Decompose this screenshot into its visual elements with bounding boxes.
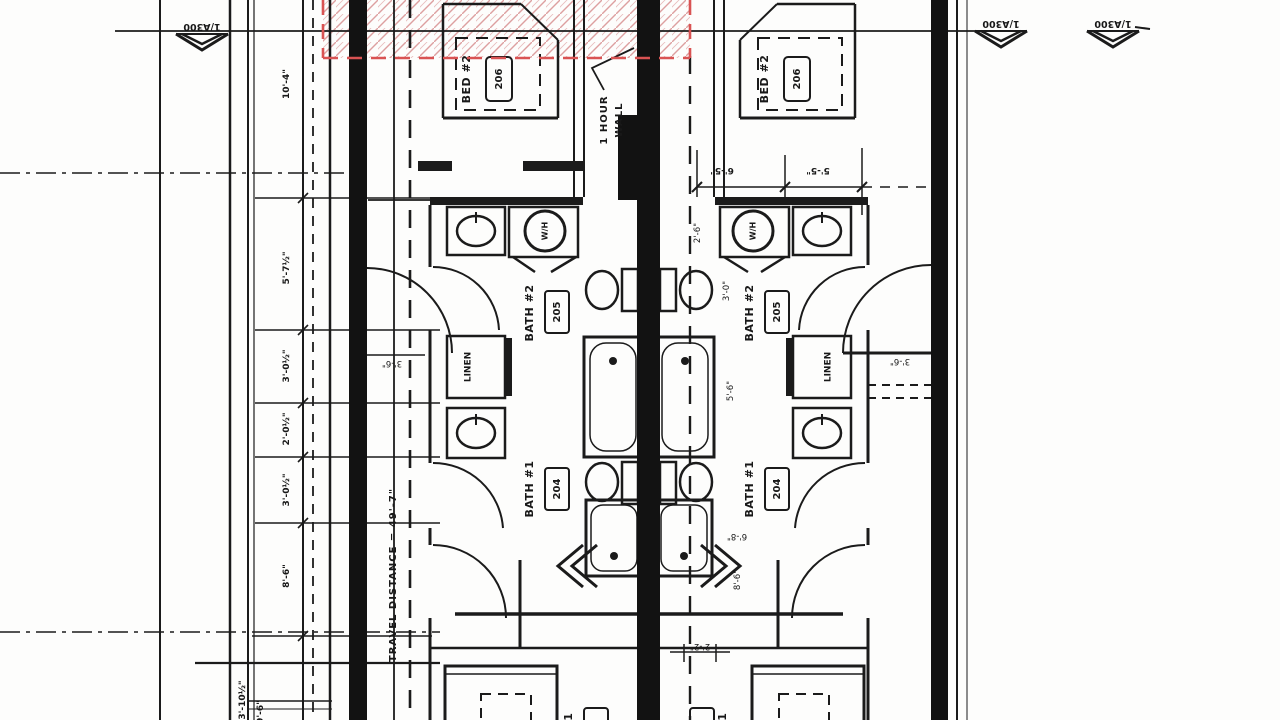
right-bed2-label: BED #2: [758, 55, 771, 104]
right-bed1-tag-box: [690, 708, 714, 720]
right-bath2-tag: 205: [772, 302, 783, 323]
left-linen-label: LINEN: [464, 352, 474, 382]
dim-3-6-left: 3'-6": [382, 358, 402, 368]
left-bath2-toilet: [586, 269, 638, 311]
right-linen-closet: LINEN: [786, 336, 851, 398]
left-bath2-label: BATH #2: [523, 285, 536, 342]
right-bath2-sink: [793, 207, 851, 255]
right-bath1-toilet: [660, 462, 712, 504]
left-bath-block: W/H BATH #2 205 LINEN: [367, 197, 643, 720]
dim-left-5: 8'-6": [282, 564, 292, 588]
dim-2-2: 2'-2": [690, 641, 710, 651]
one-hour-wall-text-2: WALL: [614, 102, 625, 137]
left-bath2-tag: 205: [552, 302, 563, 323]
left-bed2-label: BED #2: [460, 55, 473, 104]
left-bed2-tag: 206: [494, 69, 505, 90]
section-marker-mid-label: 1/A300: [982, 18, 1020, 29]
dim-left-3: 2'-0½": [281, 412, 292, 445]
dim-left-0: 10'-4": [282, 69, 292, 99]
right-bath1-label: BATH #1: [743, 461, 756, 518]
dim-8-6-center: 8'-6": [733, 570, 743, 590]
section-marker-right: 1/A300: [1087, 18, 1150, 47]
left-bed1-room: BED #1: [445, 666, 608, 720]
dim-left-1: 5'-7½": [281, 251, 292, 284]
floor-plan-svg: BED #2 206 W/H: [0, 0, 1280, 720]
left-bath2-sink: [447, 207, 505, 255]
right-linen-label: LINEN: [824, 352, 834, 382]
left-bath1-tub: [586, 500, 642, 576]
right-water-heater: W/H: [720, 207, 789, 272]
dim-3-6-right: 3'-6": [890, 356, 910, 366]
right-bed1-room: BED #1: [690, 666, 864, 720]
right-wh-label: W/H: [749, 222, 758, 240]
left-bed1-tag-box: [584, 708, 608, 720]
right-bed2-tag: 206: [792, 69, 803, 90]
left-water-heater: W/H: [509, 207, 578, 272]
left-linen-closet: LINEN: [447, 336, 512, 398]
right-bath2-tub: [656, 337, 714, 457]
blueprint-sheet: BED #2 206 W/H: [0, 0, 1280, 720]
right-fire-wall: [931, 0, 948, 720]
left-bath1-sink: [447, 408, 505, 458]
section-marker-left-label: 1/A300: [183, 21, 221, 32]
dim-left-4: 3'-0½": [281, 473, 292, 506]
dim-2-2-group: 2'-2": [670, 641, 730, 662]
left-bed1-label: BED #1: [562, 713, 575, 720]
dim-3-0: 3'-0": [722, 281, 732, 301]
dim-right-top-1: 6'-5": [710, 165, 734, 175]
section-marker-right-label: 1/A300: [1094, 18, 1132, 29]
travel-distance-text: TRAVEL DISTANCE = 49'-7": [388, 488, 399, 662]
right-bath1-tub: [656, 500, 712, 576]
left-closet-doors: [558, 545, 597, 587]
dim-2-6: 2'-6": [693, 223, 703, 243]
left-bath1-tag: 204: [552, 479, 563, 500]
left-bath1-label: BATH #1: [523, 461, 536, 518]
right-unit: BED #2 206 6'-5" 5'-5": [655, 0, 931, 720]
party-walls: [349, 0, 948, 720]
dim-left-6: 3'-10½": [237, 680, 248, 719]
right-bath1-sink: [793, 408, 851, 458]
dim-right-top-2: 5'-5": [806, 165, 830, 175]
right-door-arcs: [792, 265, 931, 618]
dim-left-2: 3'-0½": [281, 349, 292, 382]
center-fire-wall: [637, 0, 660, 720]
left-fire-wall: [349, 0, 367, 720]
section-marker-left: 1/A300: [176, 21, 228, 50]
right-bed1-label: BED #1: [716, 713, 729, 720]
left-wh-label: W/H: [541, 222, 550, 240]
section-marker-mid: 1/A300: [975, 18, 1027, 47]
right-bath2-toilet: [660, 269, 712, 311]
dim-5-6: 5'-6": [726, 381, 736, 401]
right-bath2-label: BATH #2: [743, 285, 756, 342]
dim-6-8-center: 6'-8": [727, 531, 747, 541]
one-hour-wall-text-1: 1 HOUR: [599, 95, 610, 144]
red-hatch-area: [323, 0, 690, 58]
dim-left-7: 9'-6": [256, 700, 266, 720]
right-bath1-tag: 204: [772, 479, 783, 500]
left-bath2-tub: [584, 337, 642, 457]
left-bath1-toilet: [586, 462, 638, 504]
